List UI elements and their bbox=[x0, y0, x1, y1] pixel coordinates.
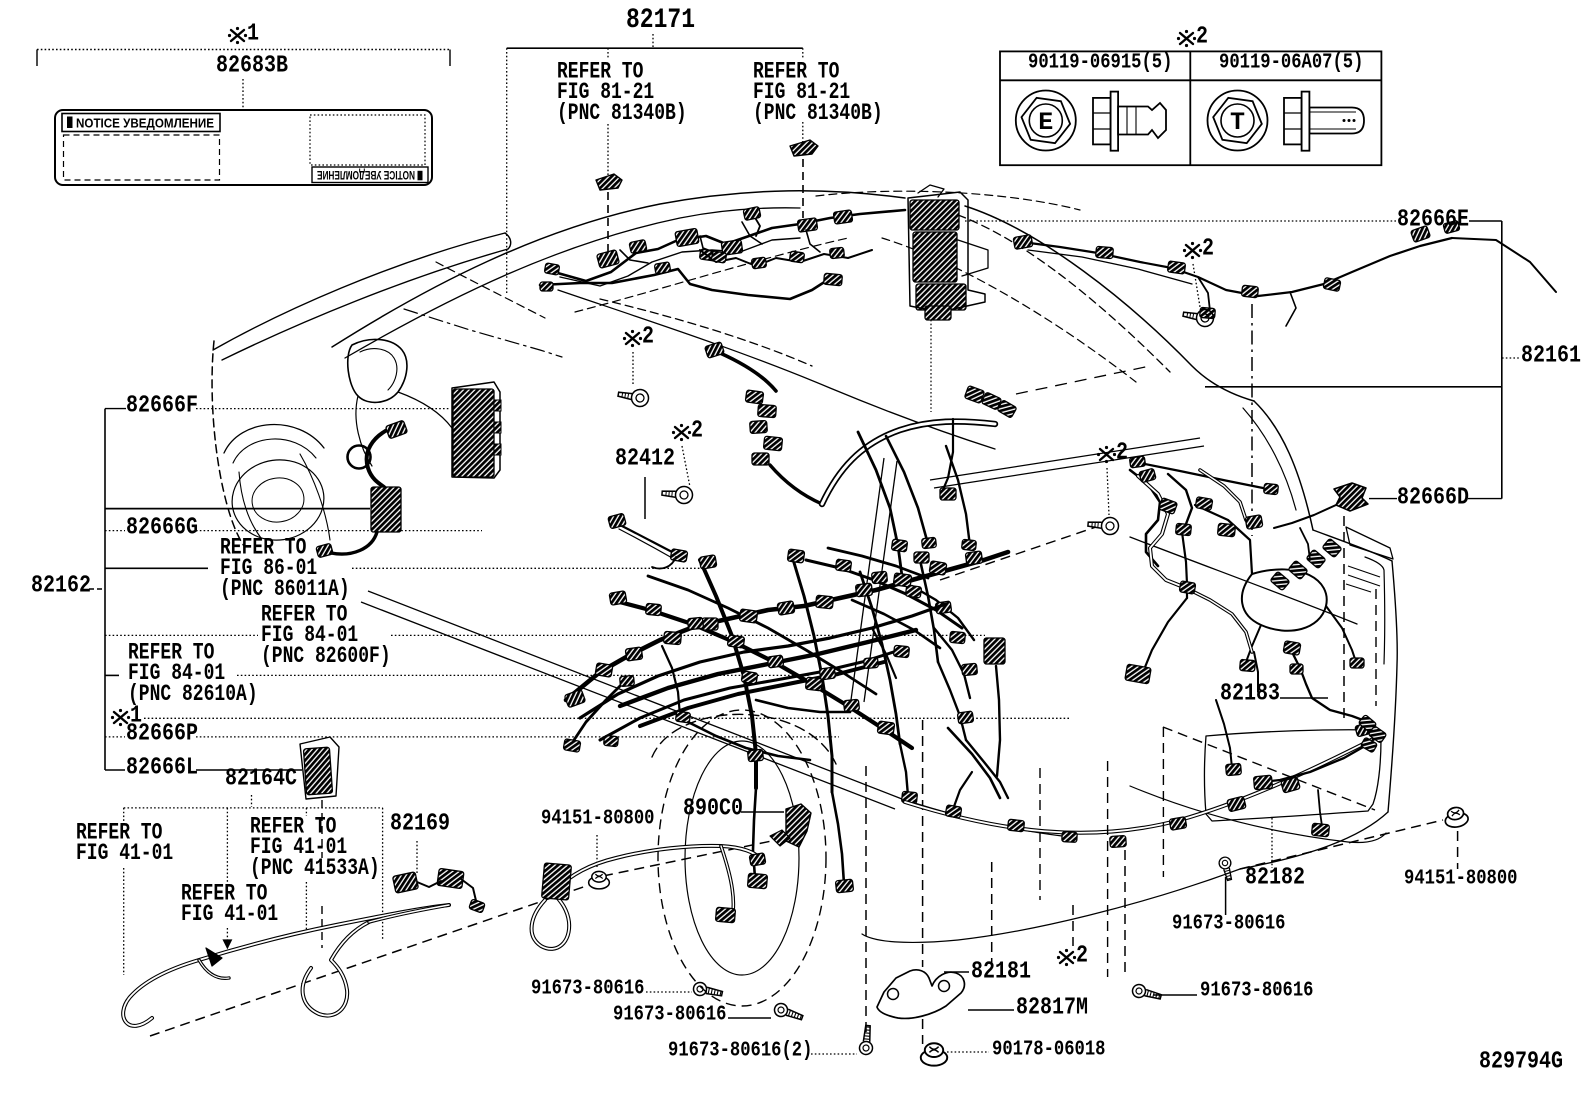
svg-text:NOTICE УВЕДОМЛЕНИЕ: NOTICE УВЕДОМЛЕНИЕ bbox=[76, 117, 214, 131]
svg-text:E: E bbox=[1038, 108, 1053, 137]
svg-text:T: T bbox=[1230, 108, 1245, 137]
svg-text:NOTICE УВЕДОМЛЕНИЕ: NOTICE УВЕДОМЛЕНИЕ bbox=[317, 168, 415, 180]
